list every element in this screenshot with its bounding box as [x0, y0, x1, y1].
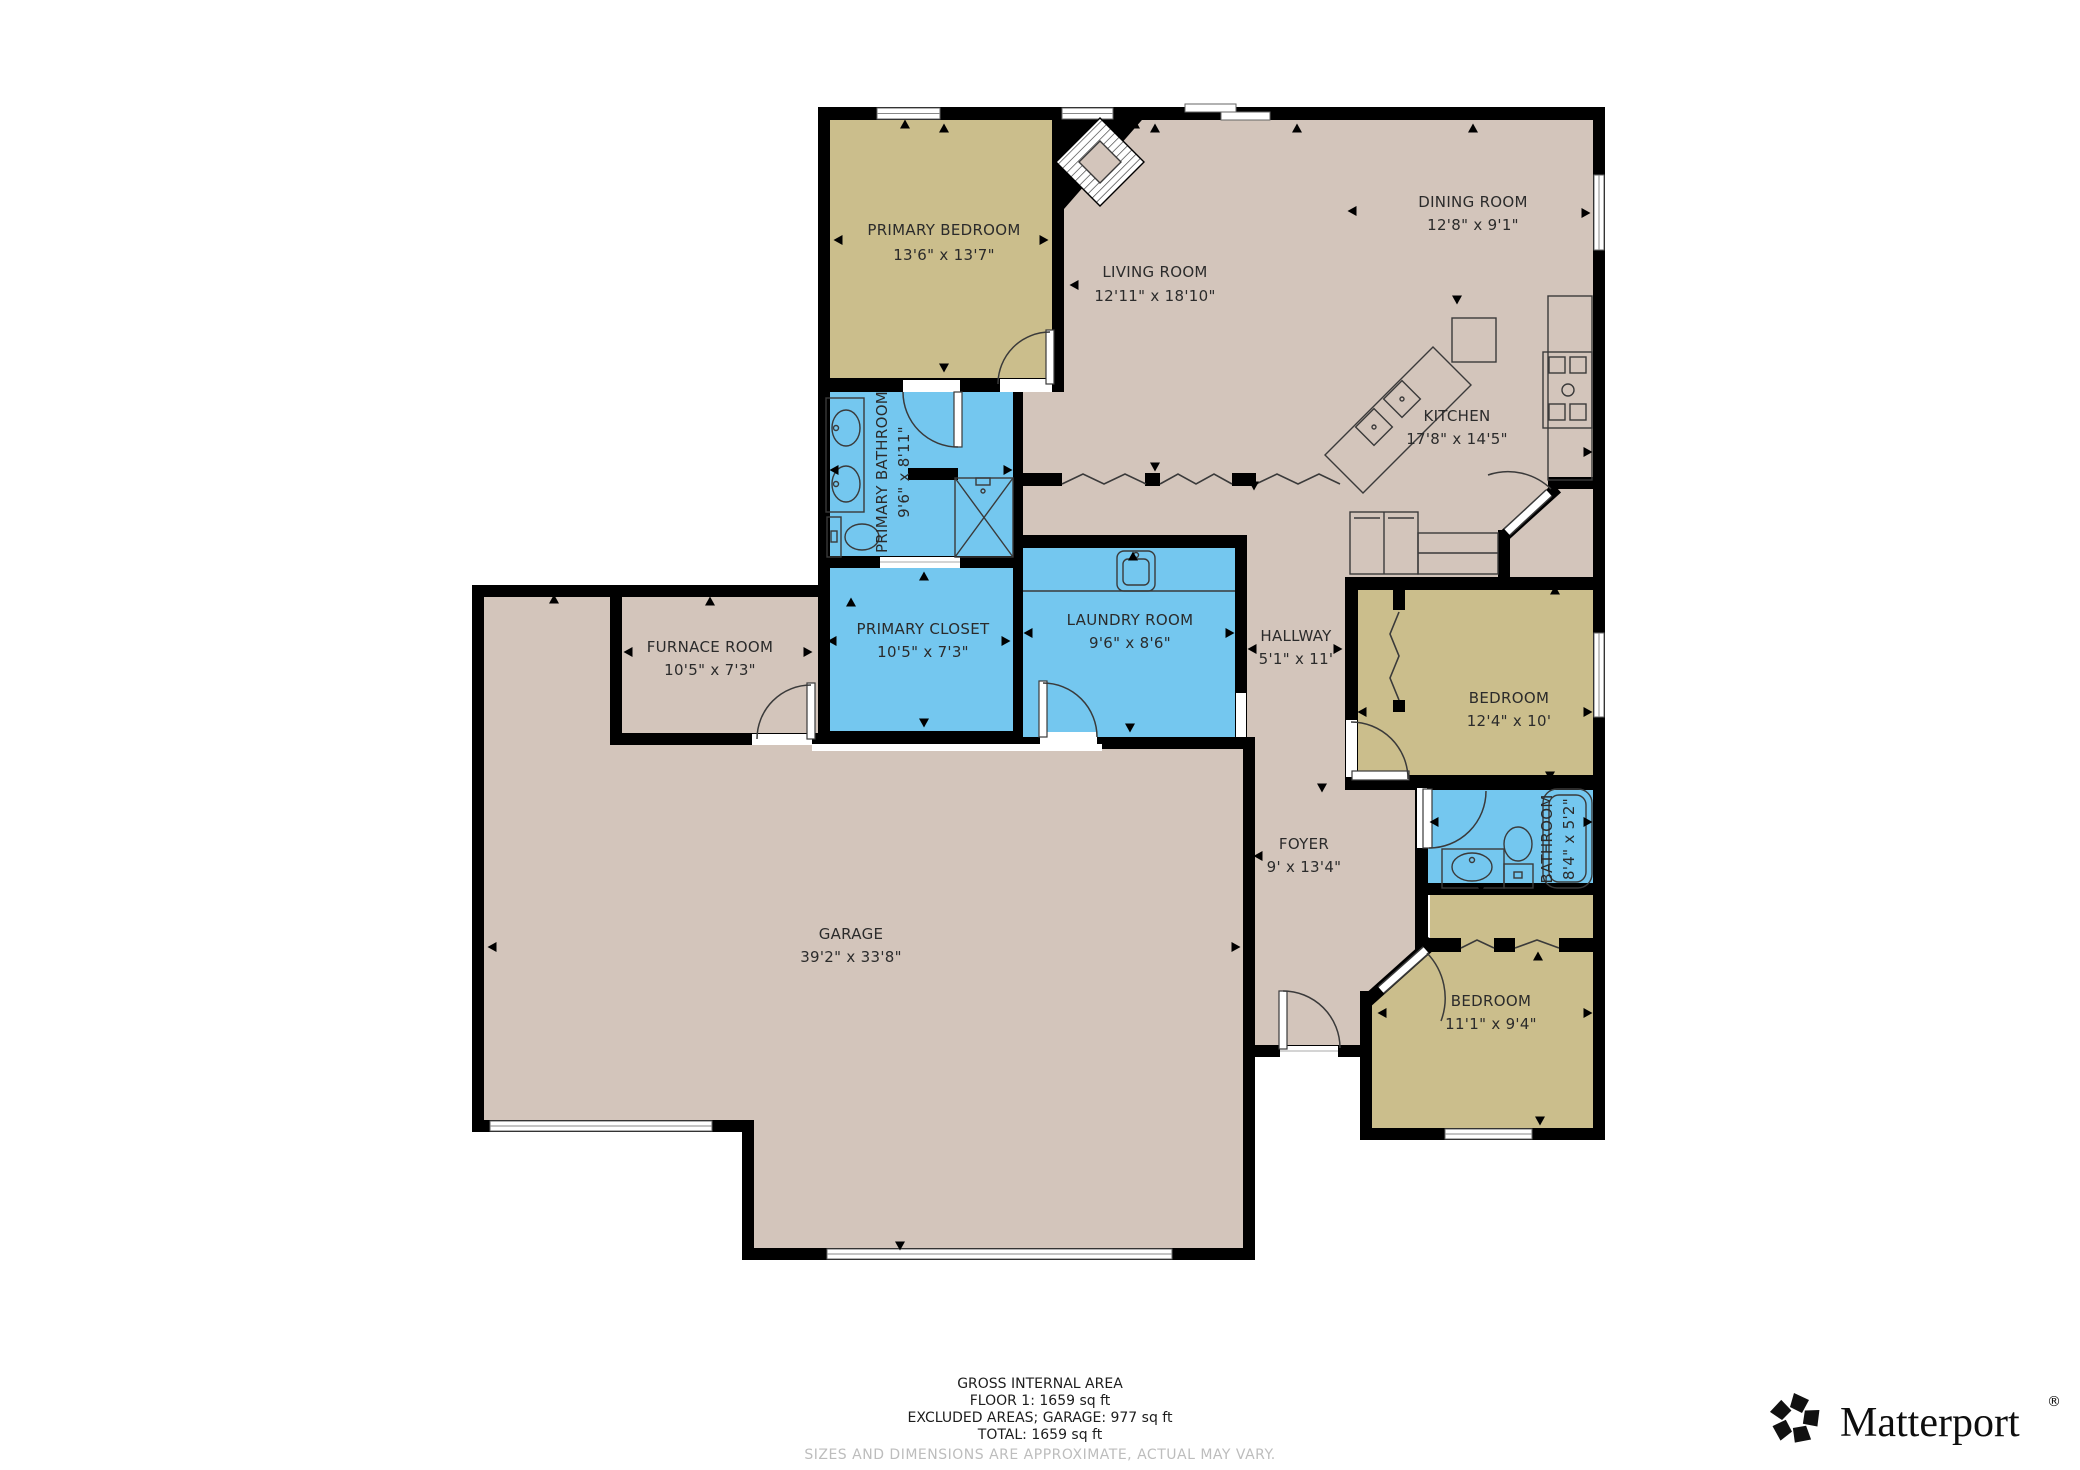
- room-dims: 17'8" x 14'5": [1406, 430, 1508, 448]
- room-dims: 12'11" x 18'10": [1094, 287, 1215, 305]
- room-dims: 5'1" x 11': [1259, 650, 1334, 668]
- door-opening: [1236, 693, 1246, 737]
- front-door-opening: [1280, 1046, 1338, 1057]
- room-label: LIVING ROOM: [1102, 263, 1207, 281]
- room-label: HALLWAY: [1260, 627, 1332, 645]
- window: [1445, 1129, 1532, 1139]
- room-dims: 12'4" x 10': [1467, 712, 1552, 730]
- room-label: BEDROOM: [1451, 992, 1531, 1010]
- room-dims: 13'6" x 13'7": [893, 246, 995, 264]
- room-dims: 12'8" x 9'1": [1427, 216, 1519, 234]
- floor-plan-drawing: PRIMARY BEDROOM 13'6" x 13'7" LIVING ROO…: [0, 0, 2080, 1470]
- room-label: LAUNDRY ROOM: [1067, 611, 1194, 629]
- footer-excluded: EXCLUDED AREAS; GARAGE: 977 sq ft: [908, 1410, 1173, 1426]
- room-label: BATHROOM: [1538, 794, 1556, 883]
- footer-total: TOTAL: 1659 sq ft: [977, 1427, 1103, 1443]
- room-label: FURNACE ROOM: [647, 638, 774, 656]
- floor-plan-page: PRIMARY BEDROOM 13'6" x 13'7" LIVING ROO…: [0, 0, 2080, 1470]
- room-label: KITCHEN: [1423, 407, 1490, 425]
- footer-title: GROSS INTERNAL AREA: [957, 1376, 1123, 1392]
- footer: GROSS INTERNAL AREA FLOOR 1: 1659 sq ft …: [804, 1376, 1275, 1463]
- door-opening: [752, 734, 812, 745]
- room-dims: 39'2" x 33'8": [800, 948, 902, 966]
- room-dims: 9'6" x 8'6": [1089, 634, 1171, 652]
- room-dims: 11'1" x 9'4": [1445, 1015, 1537, 1033]
- window: [1594, 175, 1604, 250]
- footer-disclaimer: SIZES AND DIMENSIONS ARE APPROXIMATE, AC…: [804, 1447, 1275, 1463]
- garage-door: [827, 1249, 1172, 1259]
- registered-trademark: ®: [2047, 1394, 2061, 1410]
- window: [1594, 633, 1604, 717]
- door-opening: [1000, 379, 1052, 392]
- room-label: PRIMARY BEDROOM: [867, 221, 1020, 239]
- window: [1062, 108, 1113, 119]
- room-label: FOYER: [1279, 835, 1329, 853]
- room-living-strip-floor: [1018, 384, 1068, 486]
- matterport-wordmark: Matterport: [1840, 1400, 2020, 1446]
- room-label: GARAGE: [819, 925, 884, 943]
- room-dims: 9' x 13'4": [1267, 858, 1342, 876]
- room-dims: 9'6" x 8'11": [895, 426, 913, 518]
- room-label: PRIMARY CLOSET: [857, 620, 990, 638]
- room-label: DINING ROOM: [1418, 193, 1528, 211]
- door-opening: [1346, 720, 1357, 777]
- room-bedroom-right-floor: [1351, 583, 1599, 783]
- room-label: PRIMARY BATHROOM: [873, 391, 891, 553]
- window: [877, 108, 940, 119]
- matterport-logo: Matterport ®: [1768, 1393, 2061, 1448]
- window: [490, 1121, 712, 1131]
- room-label: BEDROOM: [1469, 689, 1549, 707]
- room-dims: 8'4" x 5'2": [1560, 798, 1578, 880]
- room-dims: 10'5" x 7'3": [877, 643, 969, 661]
- matterport-pinwheel-icon: [1768, 1393, 1824, 1448]
- room-dims: 10'5" x 7'3": [664, 661, 756, 679]
- footer-floor1: FLOOR 1: 1659 sq ft: [970, 1393, 1111, 1409]
- door-opening: [1040, 732, 1097, 748]
- door-opening: [903, 380, 960, 392]
- closet-opening: [880, 557, 960, 568]
